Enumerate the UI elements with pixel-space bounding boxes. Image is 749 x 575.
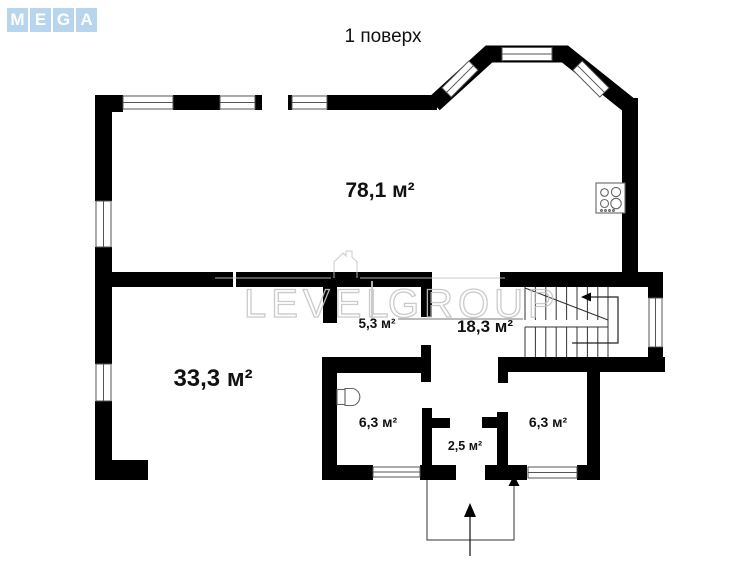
floor-plan-svg: LEVEL GROUP 78,1 м² 33,3 м² 5,3 м² 18,3 … xyxy=(0,0,749,575)
entrance-arrow-icon xyxy=(464,503,476,556)
window-icon xyxy=(649,298,662,347)
toilet-icon xyxy=(337,389,360,406)
watermark: LEVEL GROUP xyxy=(215,251,560,326)
room-label-corridor: 5,3 м² xyxy=(359,316,397,331)
window-icon xyxy=(292,96,327,109)
room-label-bathroom: 6,3 м² xyxy=(359,414,398,430)
stairs-direction-arrow-icon xyxy=(581,293,591,302)
room-label-living-kitchen: 78,1 м² xyxy=(345,179,414,202)
window-icon xyxy=(123,96,173,109)
window-icon xyxy=(528,467,577,478)
porch xyxy=(427,475,520,540)
room-label-hall: 18,3 м² xyxy=(457,317,513,336)
window-icon xyxy=(373,467,420,477)
window-icon xyxy=(502,48,552,61)
window-icon xyxy=(96,201,111,247)
window-icon xyxy=(220,96,255,109)
room-label-storage: 6,3 м² xyxy=(529,414,568,430)
stove-icon xyxy=(596,183,625,213)
room-label-vestibule: 2,5 м² xyxy=(448,439,482,453)
window-icon xyxy=(96,364,111,401)
room-label-room: 33,3 м² xyxy=(173,365,252,392)
floor-plan-page: M E G A 1 поверх xyxy=(0,0,749,575)
